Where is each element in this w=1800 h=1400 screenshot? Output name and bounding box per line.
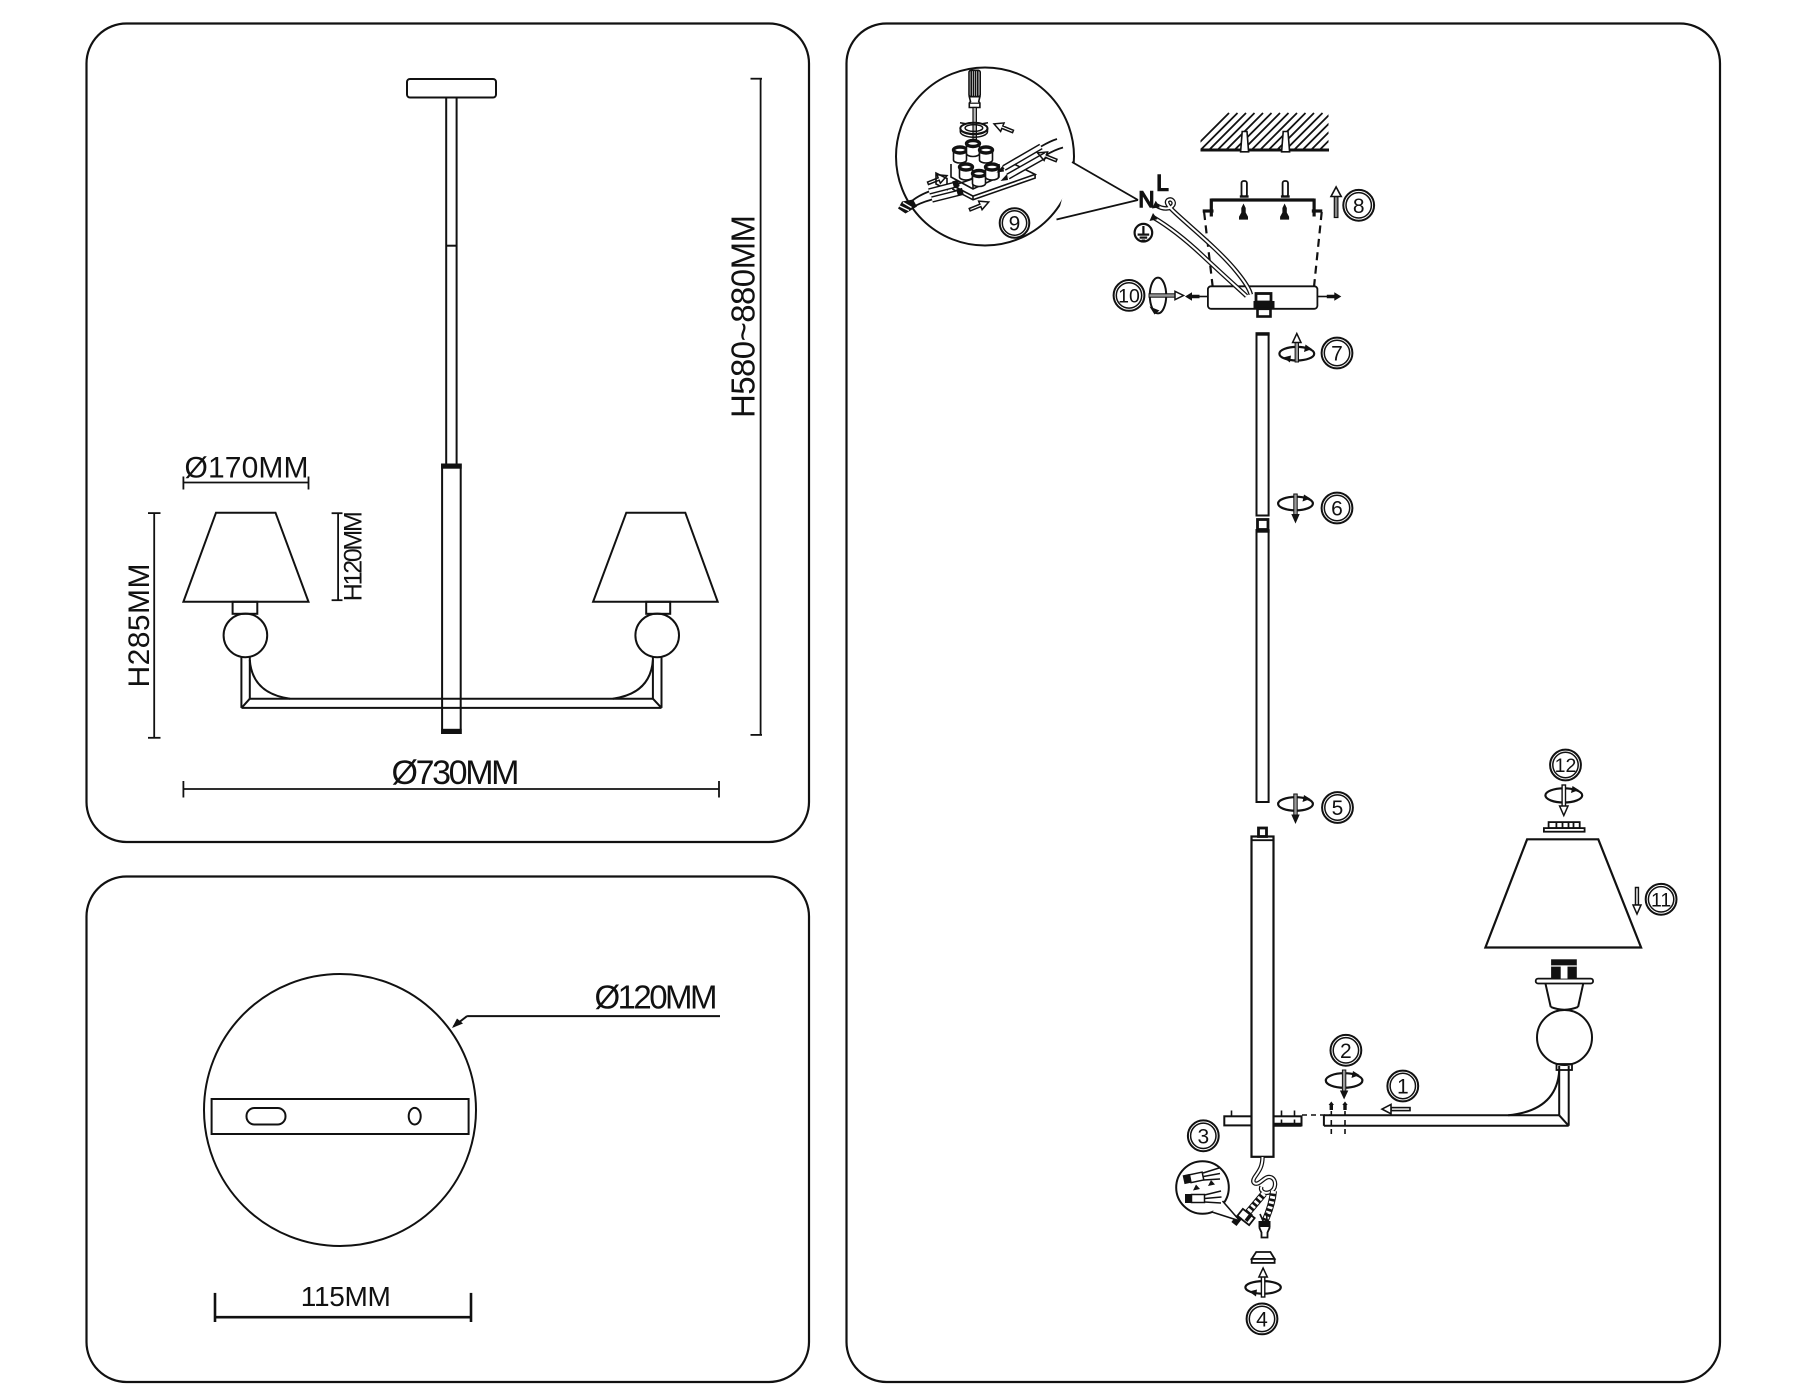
svg-text:H580~880MM: H580~880MM [725, 215, 762, 418]
svg-text:Ø120MM: Ø120MM [595, 979, 718, 1016]
svg-text:H120MM: H120MM [340, 511, 368, 601]
svg-text:3: 3 [1197, 1125, 1209, 1148]
svg-text:2: 2 [1340, 1040, 1352, 1063]
svg-text:N: N [1139, 187, 1155, 212]
svg-text:5: 5 [1332, 797, 1344, 820]
svg-text:L: L [1156, 171, 1168, 196]
svg-text:1: 1 [1397, 1076, 1409, 1099]
svg-text:Ø170MM: Ø170MM [185, 452, 309, 485]
svg-text:4: 4 [1256, 1308, 1268, 1331]
svg-text:10: 10 [1118, 286, 1140, 308]
svg-text:6: 6 [1331, 498, 1343, 521]
svg-text:Ø730MM: Ø730MM [392, 754, 520, 792]
svg-text:115MM: 115MM [301, 1281, 391, 1312]
svg-text:12: 12 [1555, 755, 1577, 777]
svg-text:H285MM: H285MM [123, 564, 156, 688]
svg-text:7: 7 [1331, 343, 1343, 366]
svg-text:11: 11 [1651, 890, 1671, 912]
svg-text:8: 8 [1353, 195, 1365, 218]
svg-text:9: 9 [1009, 212, 1021, 235]
